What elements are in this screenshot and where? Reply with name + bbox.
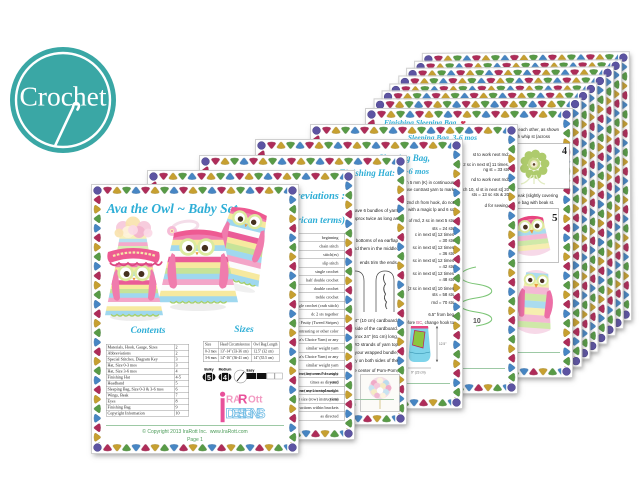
- svg-text:Crochet: Crochet: [19, 81, 106, 112]
- svg-text:Easy: Easy: [247, 368, 255, 372]
- svg-text:5: 5: [207, 375, 211, 382]
- svg-text:10: 10: [473, 318, 481, 325]
- svg-text:4: 4: [223, 375, 227, 382]
- svg-text:4: 4: [562, 146, 567, 157]
- svg-text:5: 5: [552, 212, 558, 224]
- svg-text:Medium: Medium: [219, 368, 232, 372]
- svg-text:Ott: Ott: [248, 395, 263, 406]
- svg-text:9" (23 cm): 9" (23 cm): [411, 371, 426, 375]
- svg-text:DESIGNS: DESIGNS: [226, 405, 266, 421]
- svg-text:12.5": 12.5": [439, 342, 446, 346]
- svg-text:Bulky: Bulky: [204, 368, 213, 372]
